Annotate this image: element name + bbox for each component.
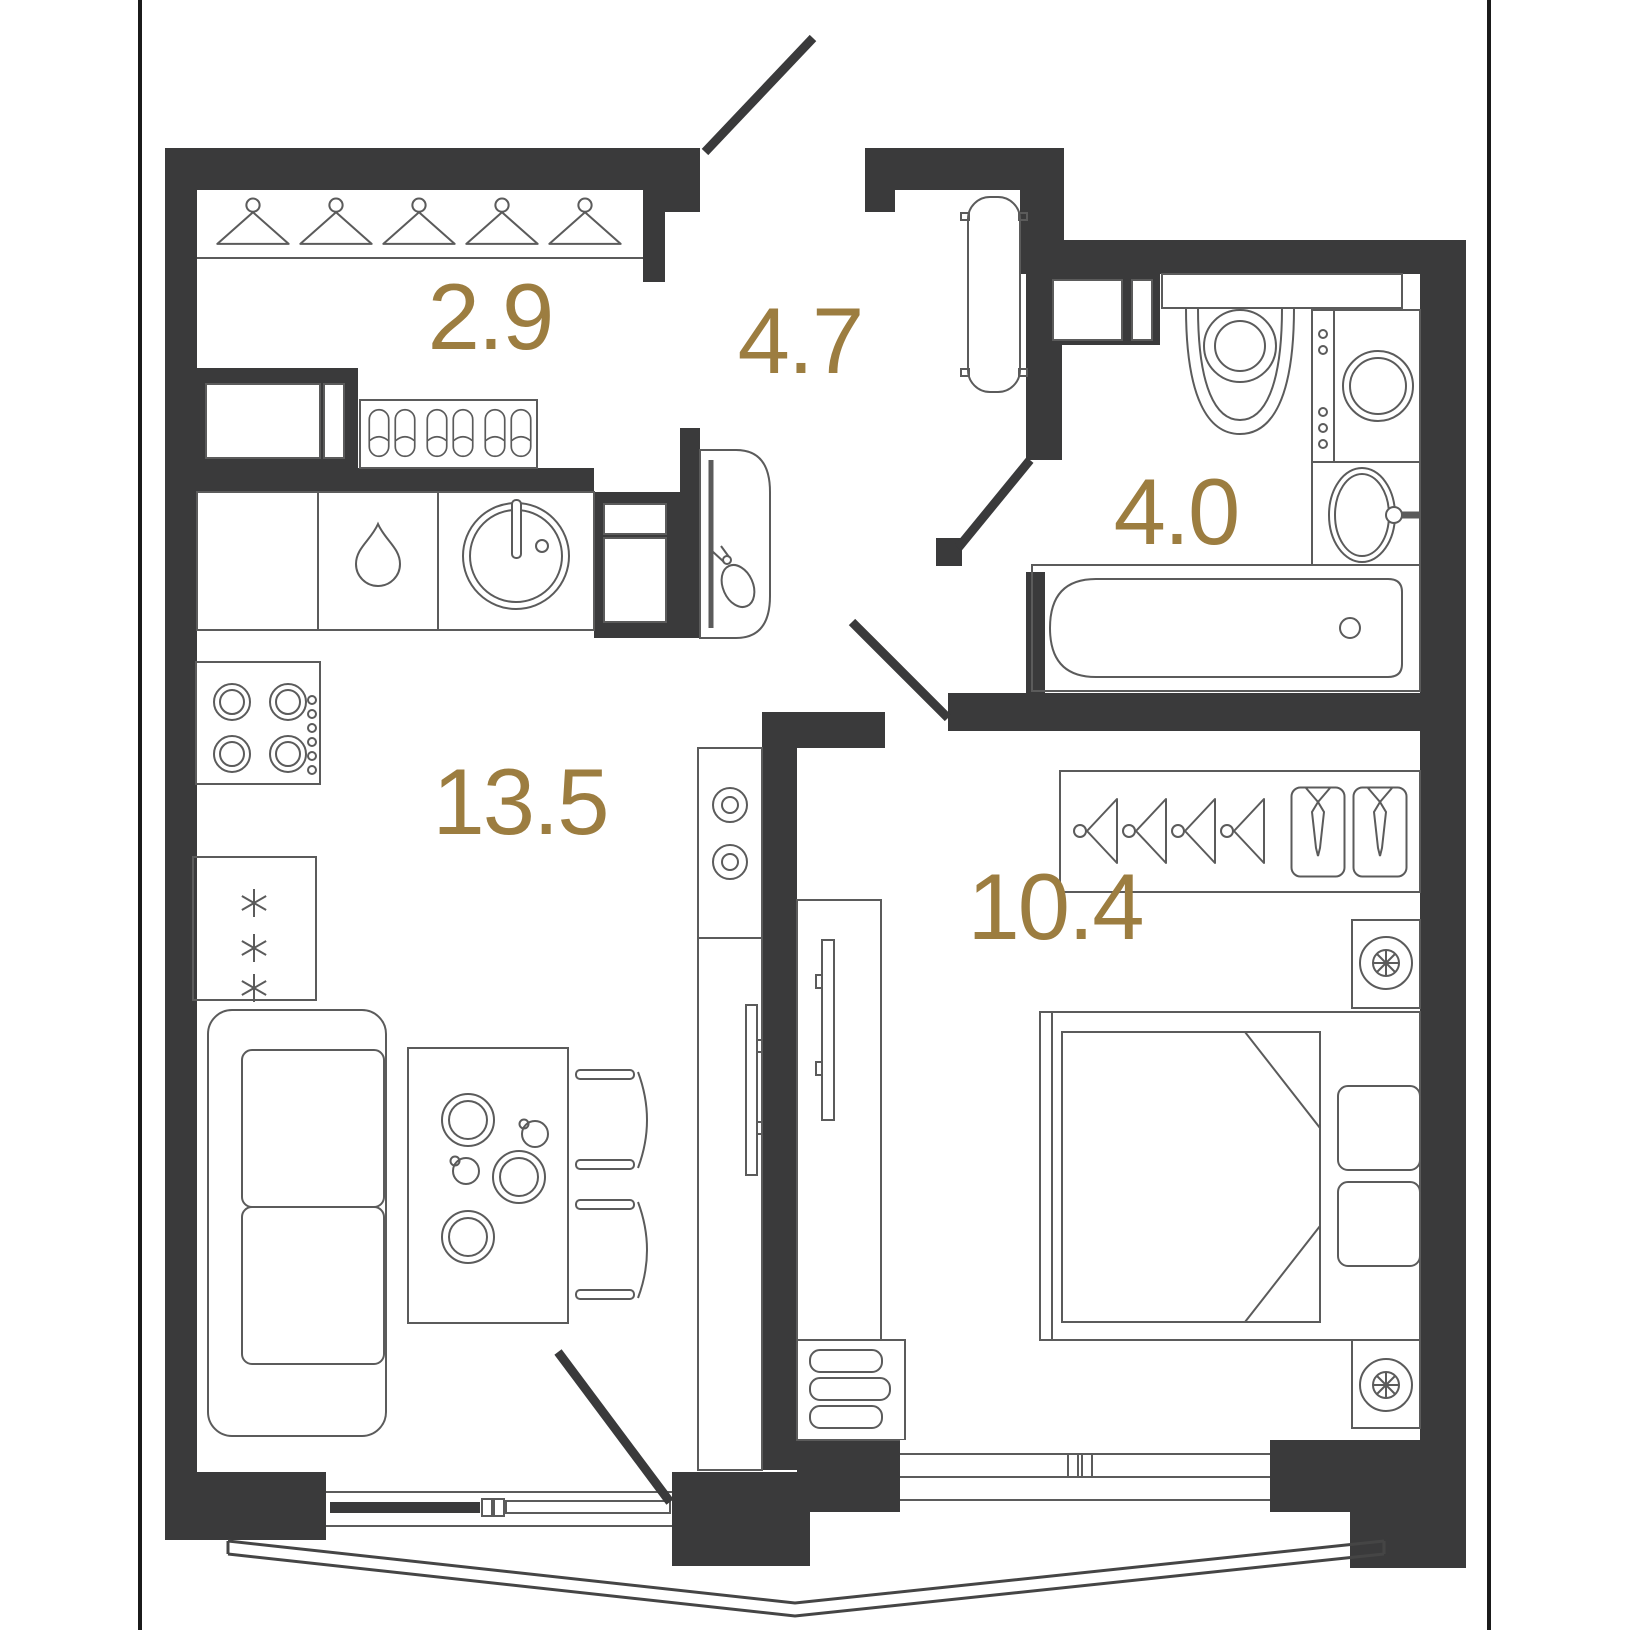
snowflake-icon <box>242 934 266 962</box>
nightstand-bottom <box>1352 1340 1420 1428</box>
area-label-hallway: 4.7 <box>738 288 863 393</box>
page-frame-line-left <box>138 0 142 1630</box>
slipper-icon <box>485 410 504 457</box>
closet-cabinet-slot <box>324 384 344 458</box>
dining-table <box>408 1048 568 1323</box>
entrance-door <box>705 38 813 152</box>
sofa <box>208 1010 386 1436</box>
radiator <box>961 197 1027 392</box>
bathroom-door <box>958 460 1030 548</box>
area-label-wardrobe: 2.9 <box>428 264 553 369</box>
area-label-kitchen-living: 13.5 <box>433 749 608 854</box>
floor-plan: 2.9 4.7 <box>0 0 1630 1630</box>
pouch-icon <box>715 560 760 612</box>
page-frame-line-right <box>1487 0 1491 1630</box>
bath-vent-niche <box>1053 280 1122 340</box>
slipper-icon <box>453 410 472 457</box>
toilet <box>1186 308 1294 434</box>
kitchen-counter <box>197 492 594 630</box>
washing-machine <box>1312 310 1420 462</box>
area-label-bedroom: 10.4 <box>968 854 1143 959</box>
bath-vent-niche-2 <box>1132 280 1152 340</box>
snowflake-icon <box>242 889 266 917</box>
closet-cabinet-niche <box>206 384 320 458</box>
bath-shelf <box>1162 274 1402 308</box>
faucet-icon <box>512 500 521 558</box>
balcony-door <box>326 1352 672 1540</box>
kitchen-vent-niche-2 <box>604 538 666 622</box>
kitchen-vent-niche <box>604 504 666 534</box>
nightstand-top <box>1352 920 1420 1008</box>
coat-hanger-icon <box>549 199 620 244</box>
floor-plan-page: 2.9 4.7 <box>0 0 1630 1630</box>
dishwasher-drop-icon <box>356 524 400 586</box>
slipper-icon <box>427 410 446 457</box>
chair <box>576 1200 647 1299</box>
room-bedroom: 10.4 <box>797 771 1420 1512</box>
drain-icon <box>1340 618 1360 638</box>
slipper-icon <box>511 410 530 457</box>
bed <box>1040 1012 1420 1340</box>
bedroom-tv-unit <box>797 900 881 1340</box>
fridge <box>193 857 316 1002</box>
bathtub <box>1032 565 1420 691</box>
media-column-living <box>698 748 762 1470</box>
washbasin <box>1312 462 1420 565</box>
slipper-icon <box>369 410 388 457</box>
coat-hanger-icon <box>300 199 371 244</box>
hall-console-mirror <box>700 450 770 638</box>
area-label-bathroom: 4.0 <box>1114 459 1239 564</box>
living-room-door <box>852 622 948 718</box>
coat-hanger-icon <box>466 199 537 244</box>
cooktop <box>196 662 320 784</box>
drawer-dresser <box>797 1340 905 1440</box>
slipper-icon <box>395 410 414 457</box>
chair <box>576 1070 647 1169</box>
snowflake-icon <box>242 974 266 1002</box>
room-hallway: 4.7 <box>700 197 1027 638</box>
bedroom-window <box>900 1440 1270 1512</box>
coat-hanger-icon <box>217 199 288 244</box>
coat-hanger-icon <box>383 199 454 244</box>
